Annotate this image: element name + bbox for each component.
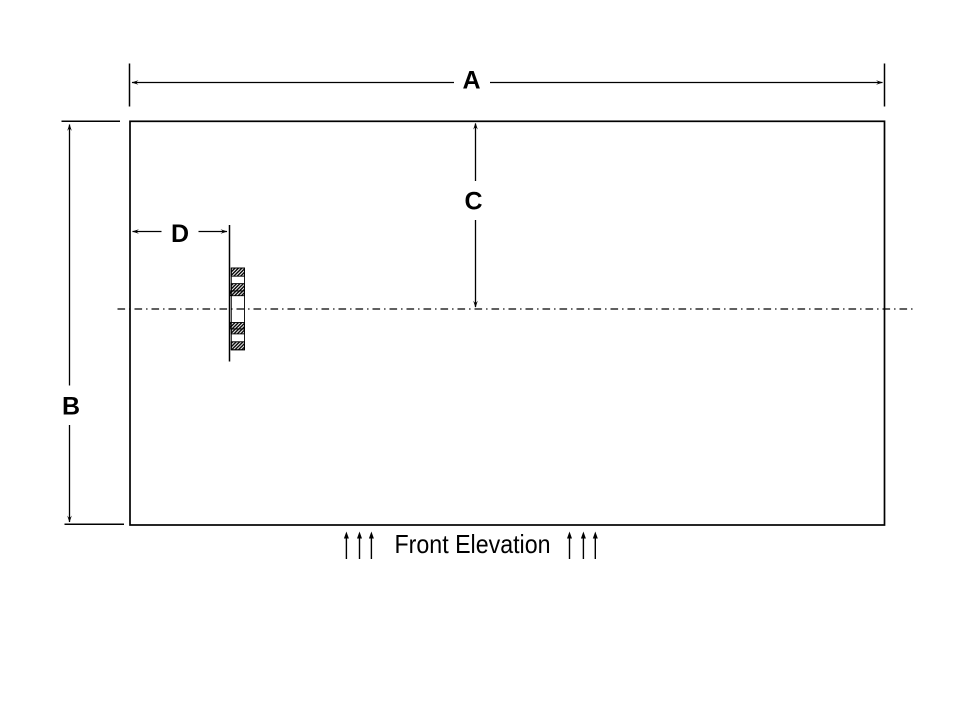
svg-text:C: C [464, 188, 482, 216]
svg-text:Front Elevation: Front Elevation [395, 529, 551, 559]
svg-text:D: D [171, 220, 189, 248]
svg-text:A: A [462, 67, 480, 95]
svg-text:B: B [62, 393, 80, 421]
